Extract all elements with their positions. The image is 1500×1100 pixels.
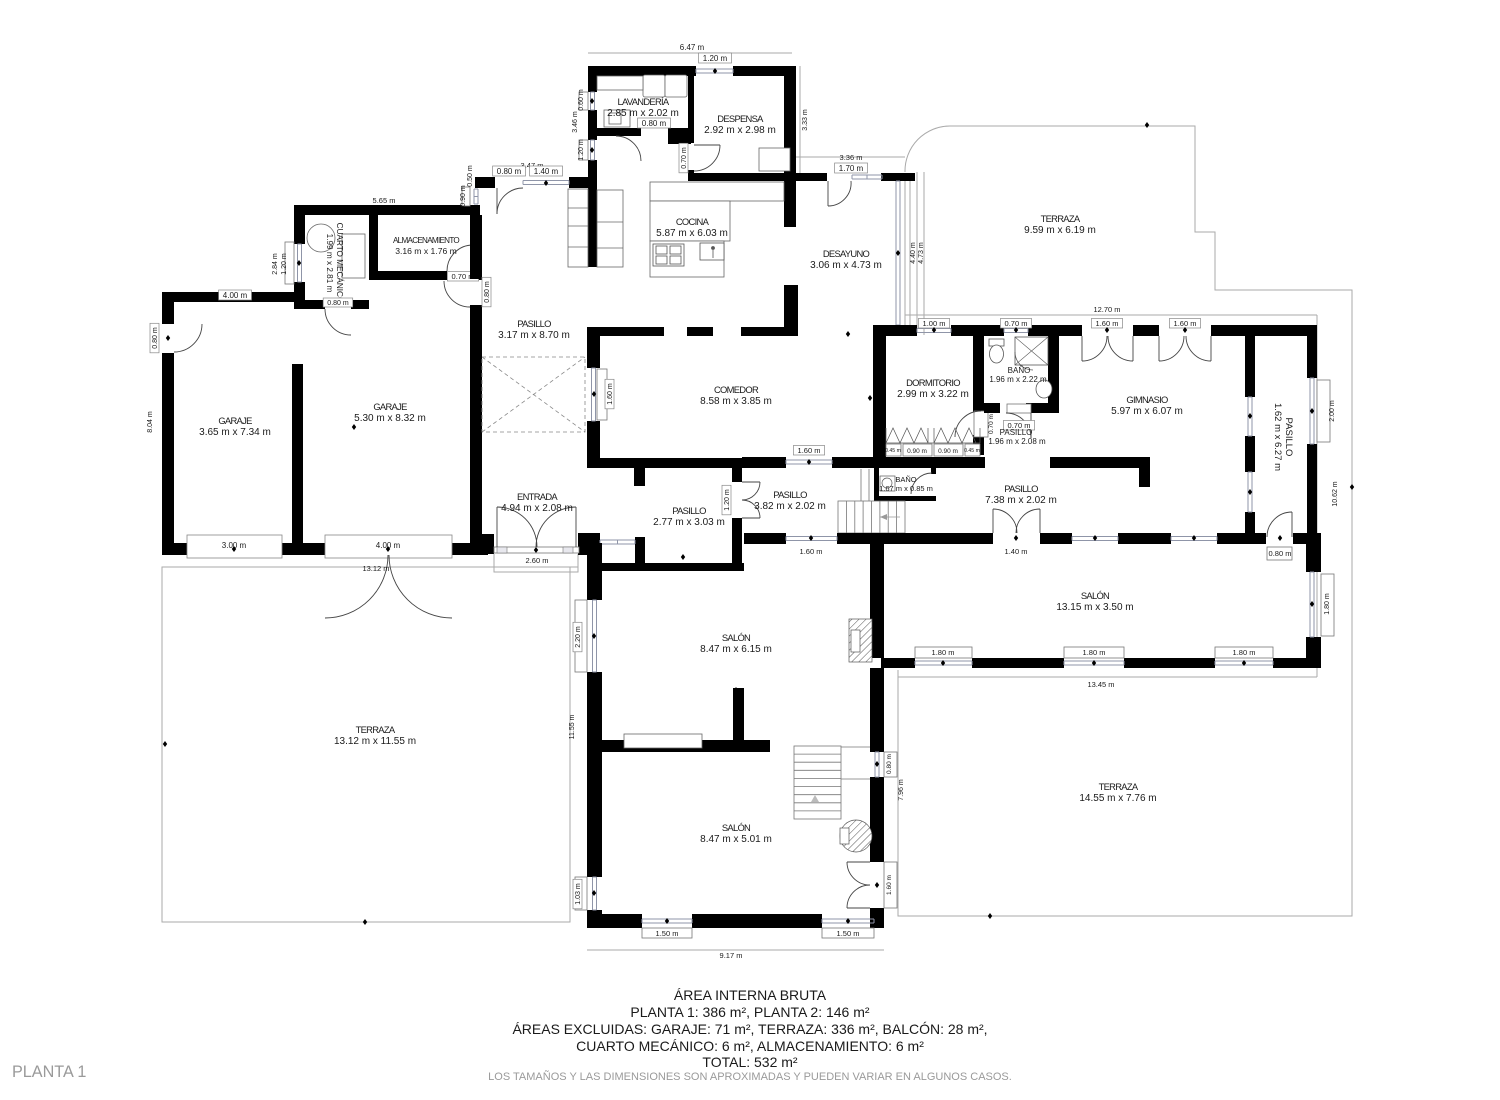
svg-text:BAÑO: BAÑO	[895, 475, 916, 484]
svg-text:0.80 m: 0.80 m	[484, 281, 491, 303]
svg-text:2.60 m: 2.60 m	[526, 556, 549, 565]
svg-text:DESAYUNO: DESAYUNO	[823, 248, 870, 259]
svg-text:0.80 m: 0.80 m	[327, 300, 349, 307]
svg-text:1.60 m: 1.60 m	[1096, 319, 1119, 328]
svg-text:4.00 m: 4.00 m	[223, 291, 248, 300]
svg-text:DORMITORIO: DORMITORIO	[906, 377, 960, 388]
svg-text:3.33 m: 3.33 m	[802, 109, 809, 131]
svg-text:1.00 m: 1.00 m	[923, 319, 946, 328]
svg-text:LOS TAMAÑOS Y LAS DIMENSIONES: LOS TAMAÑOS Y LAS DIMENSIONES SON APROXI…	[488, 1070, 1012, 1083]
svg-text:1.70 m: 1.70 m	[839, 164, 864, 173]
svg-text:SALÓN: SALÓN	[1081, 590, 1109, 601]
svg-text:1.60 m: 1.60 m	[798, 446, 821, 455]
svg-text:PLANTA 1: 386 m², PLANTA 2: 14: PLANTA 1: 386 m², PLANTA 2: 146 m²	[630, 1004, 869, 1020]
svg-text:0.70 m: 0.70 m	[681, 147, 688, 169]
svg-text:6.47 m: 6.47 m	[680, 43, 705, 52]
svg-text:0.90 m: 0.90 m	[460, 185, 467, 207]
svg-text:5.87 m x 6.03 m: 5.87 m x 6.03 m	[656, 228, 728, 239]
svg-text:3.36 m: 3.36 m	[840, 153, 863, 162]
svg-text:5.30 m x 8.32 m: 5.30 m x 8.32 m	[354, 413, 426, 424]
svg-text:1.50 m: 1.50 m	[837, 929, 860, 938]
svg-text:0.70 m: 0.70 m	[988, 414, 995, 434]
svg-text:5.65 m: 5.65 m	[373, 196, 396, 205]
svg-text:TERRAZA: TERRAZA	[356, 724, 396, 735]
svg-text:1.67 m x 0.85 m: 1.67 m x 0.85 m	[879, 484, 933, 493]
svg-text:8.04 m: 8.04 m	[147, 411, 154, 433]
svg-text:1.99 m x 2.81 m: 1.99 m x 2.81 m	[325, 234, 334, 293]
svg-text:7.38 m x 2.02 m: 7.38 m x 2.02 m	[985, 495, 1057, 506]
svg-text:0.80 m: 0.80 m	[497, 167, 522, 176]
svg-text:1.20 m: 1.20 m	[578, 139, 585, 161]
svg-text:13.12 m x 11.55 m: 13.12 m x 11.55 m	[334, 736, 416, 747]
svg-text:GIMNASIO: GIMNASIO	[1126, 394, 1168, 405]
svg-text:2.99 m x 3.22 m: 2.99 m x 3.22 m	[897, 389, 969, 400]
svg-text:0.80 m: 0.80 m	[152, 327, 159, 349]
svg-text:DESPENSA: DESPENSA	[717, 113, 764, 124]
svg-text:11.55 m: 11.55 m	[569, 714, 576, 739]
svg-text:1.20 m: 1.20 m	[703, 54, 728, 63]
svg-text:ÁREA INTERNA BRUTA: ÁREA INTERNA BRUTA	[674, 987, 827, 1003]
svg-text:5.97 m x 6.07 m: 5.97 m x 6.07 m	[1111, 406, 1183, 417]
svg-text:3.46 m: 3.46 m	[572, 111, 579, 133]
svg-text:3.65 m x 7.34 m: 3.65 m x 7.34 m	[199, 427, 271, 438]
svg-text:0.70 m: 0.70 m	[1005, 319, 1028, 328]
svg-text:1.96 m x 2.08 m: 1.96 m x 2.08 m	[988, 437, 1046, 446]
svg-text:1.20 m: 1.20 m	[724, 489, 731, 511]
svg-text:2.00 m: 2.00 m	[1329, 400, 1336, 422]
svg-text:12.70 m: 12.70 m	[1093, 305, 1120, 314]
svg-text:1.60 m: 1.60 m	[800, 547, 823, 556]
svg-text:1.62 m x 6.27 m: 1.62 m x 6.27 m	[1272, 403, 1283, 471]
svg-text:PASILLO: PASILLO	[1000, 428, 1033, 437]
svg-text:CUARTO MECÁNICO: CUARTO MECÁNICO	[335, 223, 345, 304]
svg-text:1.03 m: 1.03 m	[575, 883, 582, 905]
svg-text:3.17 m x 8.70 m: 3.17 m x 8.70 m	[498, 330, 570, 341]
svg-text:ENTRADA: ENTRADA	[517, 491, 558, 502]
svg-text:ÁREAS EXCLUIDAS: GARAJE: 71 m²: ÁREAS EXCLUIDAS: GARAJE: 71 m², TERRAZA:…	[512, 1021, 987, 1037]
svg-text:13.12 m: 13.12 m	[362, 564, 389, 573]
svg-text:13.45 m: 13.45 m	[1087, 680, 1114, 689]
svg-text:PASILLO: PASILLO	[672, 505, 706, 516]
svg-text:2.92 m x 2.98 m: 2.92 m x 2.98 m	[704, 125, 776, 136]
svg-text:TOTAL: 532 m²: TOTAL: 532 m²	[702, 1054, 798, 1070]
svg-text:1.80 m: 1.80 m	[932, 648, 955, 657]
svg-text:CUARTO MECÁNICO: 6 m², ALMACEN: CUARTO MECÁNICO: 6 m², ALMACENAMIENTO: 6…	[576, 1038, 924, 1054]
svg-text:PLANTA 1: PLANTA 1	[12, 1063, 86, 1081]
svg-text:8.47 m x 5.01 m: 8.47 m x 5.01 m	[700, 834, 772, 845]
svg-text:0.45 m: 0.45 m	[964, 448, 980, 454]
svg-text:3.16 m x 1.76 m: 3.16 m x 1.76 m	[395, 246, 457, 256]
svg-text:3.82 m x 2.02 m: 3.82 m x 2.02 m	[754, 501, 826, 512]
svg-text:8.47 m x 6.15 m: 8.47 m x 6.15 m	[700, 644, 772, 655]
svg-text:PASILLO: PASILLO	[517, 318, 551, 329]
svg-text:9.17 m: 9.17 m	[720, 951, 743, 960]
svg-text:LAVANDERÍA: LAVANDERÍA	[617, 96, 669, 107]
svg-text:10.62 m: 10.62 m	[1332, 481, 1339, 506]
svg-text:1.80 m: 1.80 m	[1083, 648, 1106, 657]
svg-text:2.20 m: 2.20 m	[575, 626, 582, 648]
svg-text:1.80 m: 1.80 m	[1324, 593, 1331, 615]
svg-text:BAÑO: BAÑO	[1008, 366, 1031, 375]
svg-text:1.96 m x 2.22 m: 1.96 m x 2.22 m	[989, 375, 1047, 384]
svg-text:PASILLO: PASILLO	[1283, 418, 1294, 457]
svg-text:TERRAZA: TERRAZA	[1041, 213, 1081, 224]
svg-text:SALÓN: SALÓN	[722, 632, 750, 643]
svg-text:4.73 m: 4.73 m	[918, 242, 925, 264]
svg-text:0.50 m: 0.50 m	[467, 165, 474, 187]
svg-text:GARAJE: GARAJE	[373, 401, 407, 412]
svg-text:0.90 m: 0.90 m	[938, 448, 958, 455]
svg-text:0.90 m: 0.90 m	[907, 448, 927, 455]
svg-text:1.20 m: 1.20 m	[281, 253, 288, 275]
svg-text:7.96 m: 7.96 m	[898, 779, 905, 801]
svg-text:PASILLO: PASILLO	[1004, 483, 1038, 494]
svg-text:4.40 m: 4.40 m	[910, 242, 917, 264]
svg-text:0.60 m: 0.60 m	[578, 89, 585, 111]
svg-text:PASILLO: PASILLO	[773, 489, 807, 500]
svg-text:0.80 m: 0.80 m	[1269, 549, 1292, 558]
svg-text:0.45 m: 0.45 m	[885, 448, 901, 454]
svg-text:0.80 m: 0.80 m	[886, 754, 893, 774]
svg-text:COMEDOR: COMEDOR	[714, 384, 759, 395]
svg-text:2.85 m x 2.02 m: 2.85 m x 2.02 m	[607, 108, 679, 119]
svg-text:2.84 m: 2.84 m	[272, 253, 279, 275]
svg-text:SALÓN: SALÓN	[722, 822, 750, 833]
svg-text:COCINA: COCINA	[676, 216, 710, 227]
svg-text:13.15 m x 3.50 m: 13.15 m x 3.50 m	[1056, 602, 1133, 613]
svg-text:1.60 m: 1.60 m	[1174, 319, 1197, 328]
svg-text:8.58 m x 3.85 m: 8.58 m x 3.85 m	[700, 396, 772, 407]
svg-text:1.40 m: 1.40 m	[1005, 547, 1028, 556]
svg-text:GARAJE: GARAJE	[218, 415, 252, 426]
svg-text:0.80 m: 0.80 m	[642, 119, 667, 128]
svg-text:14.55 m x 7.76 m: 14.55 m x 7.76 m	[1079, 793, 1156, 804]
svg-text:4.94 m x 2.08 m: 4.94 m x 2.08 m	[501, 503, 573, 514]
svg-text:1.50 m: 1.50 m	[656, 929, 679, 938]
svg-text:3.06 m x 4.73 m: 3.06 m x 4.73 m	[810, 260, 882, 271]
svg-text:ALMACENAMIENTO: ALMACENAMIENTO	[393, 236, 459, 245]
svg-text:1.40 m: 1.40 m	[534, 167, 559, 176]
svg-text:1.60 m: 1.60 m	[607, 383, 614, 405]
svg-text:TERRAZA: TERRAZA	[1099, 781, 1139, 792]
svg-text:2.77 m x 3.03 m: 2.77 m x 3.03 m	[653, 517, 725, 528]
svg-text:1.80 m: 1.80 m	[1233, 648, 1256, 657]
svg-text:1.60 m: 1.60 m	[886, 875, 893, 895]
svg-text:9.59 m x 6.19 m: 9.59 m x 6.19 m	[1024, 225, 1096, 236]
